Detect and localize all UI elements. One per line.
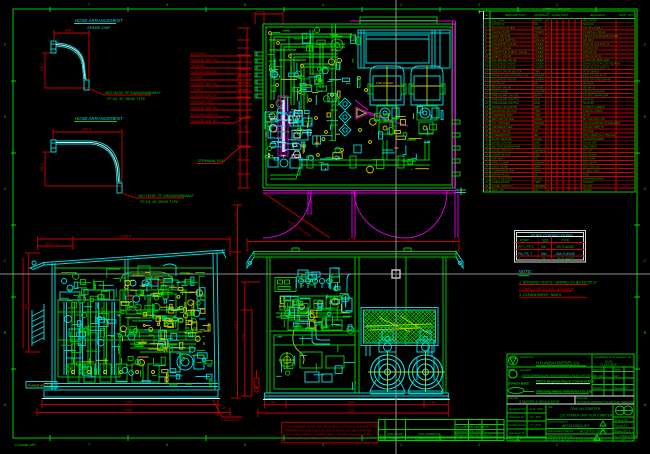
- svg-text:448.1: 448.1: [65, 29, 74, 33]
- svg-text:50A: 50A: [541, 252, 547, 256]
- svg-text:D: D: [4, 186, 7, 191]
- svg-text:Samsung Heavy Industries Co.,L: Samsung Heavy Industries Co.,Ltd: [536, 390, 593, 394]
- svg-text:Related: Related: [593, 386, 602, 390]
- svg-text:2430: 2430: [347, 409, 355, 413]
- svg-text:FLANGE 50A-1B: FLANGE 50A-1B: [190, 119, 217, 123]
- svg-text:TYPE: TYPE: [561, 239, 570, 243]
- svg-text:T PORT: T PORT: [190, 88, 204, 92]
- svg-text:2395.8: 2395.8: [119, 235, 131, 239]
- svg-text:28: 28: [221, 406, 226, 410]
- svg-text:E: E: [4, 114, 7, 119]
- svg-text:Registered: Registered: [614, 386, 627, 390]
- svg-text:MATERIAL LIST (UNIT): MATERIAL LIST (UNIT): [543, 7, 571, 11]
- svg-text:Scale: Scale: [614, 368, 621, 372]
- svg-text:H.G. YOO: H.G. YOO: [530, 407, 544, 411]
- svg-text:Consultant:: Consultant:: [520, 369, 532, 372]
- svg-text:Sheets No. 1: Sheets No. 1: [614, 429, 631, 433]
- svg-text:44: 44: [485, 188, 489, 192]
- svg-text:410.5: 410.5: [45, 242, 53, 246]
- svg-text:0/1: 0/1: [621, 438, 626, 442]
- svg-text:JIS FLANGE: JIS FLANGE: [556, 245, 575, 249]
- svg-text:K.L. KIM: K.L. KIM: [530, 415, 541, 419]
- svg-text:E: E: [644, 114, 647, 119]
- svg-text:PP 1, PF 2: PP 1, PF 2: [518, 245, 533, 249]
- svg-text:AB719-BS(D)-007: AB719-BS(D)-007: [561, 424, 589, 428]
- svg-text:Y.Y. KYU: Y.Y. KYU: [530, 423, 542, 427]
- svg-text:Confirmed by: Confirmed by: [509, 423, 526, 427]
- svg-text:-: -: [606, 387, 607, 390]
- svg-text:<Osnap off>: <Osnap off>: [14, 442, 37, 447]
- svg-text:Title: Title: [548, 406, 553, 409]
- svg-text:Date: Date: [391, 437, 398, 441]
- svg-text:BA PORT: BA PORT: [190, 52, 206, 56]
- svg-text:Checked by: Checked by: [509, 415, 524, 419]
- svg-text:5830: 5830: [348, 401, 355, 405]
- svg-text:STARTER & REGULATOR: STARTER & REGULATOR: [519, 400, 560, 404]
- svg-text:2013-01-25: 2013-01-25: [386, 432, 403, 436]
- svg-text:W/O HOSE, PF 3/4(W)&NI(B)MALE: W/O HOSE, PF 3/4(W)&NI(B)MALE: [105, 91, 161, 95]
- svg-text:PF 3/4, 90° BEND TYPE: PF 3/4, 90° BEND TYPE: [107, 97, 146, 101]
- svg-text:Scale 1:15: Scale 1:15: [614, 418, 628, 422]
- svg-text:50A FLANGE: 50A FLANGE: [556, 252, 576, 256]
- svg-text:7L21/31DF: 7L21/31DF: [600, 363, 618, 367]
- svg-text:DESCRIPTION: DESCRIPTION: [505, 13, 526, 17]
- svg-text:1168: 1168: [24, 303, 28, 310]
- svg-text:2100: 2100: [123, 401, 132, 405]
- svg-text:Rev: Rev: [380, 437, 386, 441]
- svg-text:2. PAINT PRESSURE - 150psi/bar: 2. PAINT PRESSURE - 150psi/bar: [518, 287, 575, 291]
- svg-text:W/O HOSE, PF 3/4(W)&NI(B)MALE: W/O HOSE, PF 3/4(W)&NI(B)MALE: [138, 194, 194, 198]
- svg-text:SIZE: SIZE: [542, 239, 550, 243]
- svg-text:Designed by: Designed by: [509, 407, 525, 411]
- svg-text:Regul iyilmaz Og Simb 1 3: Regul iyilmaz Og Simb 1 3: [456, 433, 492, 437]
- svg-text:PB PORT: PB PORT: [190, 64, 206, 68]
- svg-text:FLANGE 50A-2B: FLANGE 50A-2B: [190, 94, 217, 98]
- svg-text:C: C: [4, 258, 7, 263]
- svg-text:2700: 2700: [123, 409, 132, 413]
- svg-text:No. of Sheet / Total: No. of Sheet / Total: [614, 434, 637, 438]
- svg-text:25L: 25L: [540, 257, 547, 261]
- svg-text:FLANGE 80A TYPE: FLANGE 80A TYPE: [28, 384, 56, 388]
- svg-text:44/10K: 44/10K: [583, 188, 592, 192]
- svg-text:50L: 50L: [541, 245, 547, 249]
- svg-text:FLANGE 50A-1B: FLANGE 50A-1B: [190, 106, 217, 110]
- svg-text:PORT: PORT: [520, 239, 530, 243]
- svg-text:Format A1: Format A1: [614, 424, 627, 428]
- svg-text:295: 295: [243, 125, 247, 131]
- svg-text:Dash No: Dash No: [593, 368, 604, 372]
- svg-text:NOTE:: NOTE:: [519, 269, 534, 274]
- svg-text:SPARE ONE: SPARE ONE: [87, 25, 110, 30]
- svg-text:DOOSAN PRIMARY-AUXILIARY SERVI: DOOSAN PRIMARY-AUXILIARY SERVICE: [577, 400, 636, 404]
- svg-text:PURPOSE. CONTRAVENTION WILL: PURPOSE. CONTRAVENTION WILL BE PROSECUTE…: [285, 437, 362, 441]
- svg-text:REMARKS: REMARKS: [590, 13, 605, 17]
- svg-text:FLANGE 40A-2B: FLANGE 40A-2B: [190, 82, 217, 86]
- svg-text:SPARE PARTS: SPARE PARTS: [552, 14, 569, 17]
- svg-text:JIS FLANGE: JIS FLANGE: [556, 257, 575, 261]
- svg-text:760: 760: [430, 401, 436, 405]
- svg-text:905.4: 905.4: [82, 128, 91, 132]
- svg-text:1461.5: 1461.5: [234, 320, 238, 330]
- svg-text:430.8: 430.8: [40, 163, 44, 172]
- svg-text:-: -: [606, 375, 607, 378]
- svg-text:Standard: Standard: [509, 438, 521, 442]
- svg-text:-: -: [627, 387, 628, 390]
- svg-text:PF 3/4, 90° BEND TYPE: PF 3/4, 90° BEND TYPE: [140, 200, 179, 204]
- svg-text:PN, PS, T: PN, PS, T: [518, 252, 533, 256]
- svg-text:Sub-Contractor Dwg No: Sub-Contractor Dwg No: [548, 430, 574, 433]
- svg-text:-: -: [627, 381, 628, 384]
- svg-text:PN PORT LEFT: PN PORT LEFT: [190, 100, 216, 104]
- svg-text:FLANGE 50A-2B: FLANGE 50A-2B: [190, 58, 217, 62]
- svg-text:748: 748: [236, 75, 240, 80]
- svg-text:KS: KS: [534, 188, 538, 192]
- svg-text:280: 280: [269, 401, 276, 405]
- svg-text:1. BONDING TESTS - WIRING TO B: 1. BONDING TESTS - WIRING TO BS EN 50 22: [519, 281, 597, 285]
- svg-text:-: -: [606, 381, 607, 384]
- svg-text:TOP APPROVAL: TOP APPROVAL: [418, 432, 441, 436]
- svg-text:B: B: [4, 330, 7, 335]
- svg-text:S PORT: S PORT: [190, 76, 204, 80]
- svg-text:BALL V/V: BALL V/V: [492, 188, 505, 192]
- svg-text:C: C: [644, 258, 647, 263]
- svg-text:Item Ref: Item Ref: [593, 374, 603, 378]
- svg-text:3. CLEANLINESS : NAS 6: 3. CLEANLINESS : NAS 6: [519, 293, 561, 297]
- svg-text:PN PORT RIGHT: PN PORT RIGHT: [190, 113, 218, 117]
- svg-text:L-W/S HOLE: L-W/S HOLE: [221, 419, 240, 423]
- svg-text:Ordered by:: Ordered by:: [520, 355, 534, 359]
- svg-text:Approved by: Approved by: [508, 431, 525, 435]
- svg-text:-: -: [606, 369, 607, 372]
- svg-text:7DW 1/H STARTER: 7DW 1/H STARTER: [570, 407, 601, 411]
- svg-text:A: A: [643, 402, 647, 407]
- svg-text:2730: 2730: [347, 237, 356, 241]
- svg-text:FLANGE 50A-2B: FLANGE 50A-2B: [190, 70, 217, 74]
- svg-text:OIL POWER UNIT FOR STARTER: OIL POWER UNIT FOR STARTER: [560, 414, 613, 418]
- svg-text:HOSE ARRANGEMENT: HOSE ARRANGEMENT: [75, 18, 123, 23]
- svg-text:88: 88: [234, 212, 238, 216]
- svg-text:-: -: [627, 375, 628, 378]
- svg-text:TERMINAL BOX: TERMINAL BOX: [197, 159, 226, 163]
- svg-text:HYUNDAI DIESEL Co.: HYUNDAI DIESEL Co.: [536, 361, 581, 366]
- svg-text:-: -: [627, 369, 628, 372]
- svg-text:102.3: 102.3: [256, 9, 264, 13]
- svg-text:1: 1: [556, 2, 558, 7]
- svg-text:1100: 1100: [241, 333, 245, 340]
- svg-text:FOR P2(M)P: FOR P2(M)P: [376, 81, 393, 85]
- svg-text:430.8: 430.8: [40, 63, 44, 72]
- svg-text:Std.: Std.: [614, 374, 619, 378]
- svg-text:HOSE ARRANGEMENT: HOSE ARRANGEMENT: [75, 116, 123, 121]
- svg-text:Short title: Short title: [508, 397, 519, 400]
- svg-text:D: D: [644, 186, 647, 191]
- svg-text:1: 1: [556, 442, 558, 447]
- svg-text:Revision Description: Revision Description: [415, 437, 443, 441]
- svg-text:DWG. NO: DWG. NO: [619, 13, 633, 17]
- svg-text:B: B: [644, 330, 647, 335]
- svg-text:No: No: [485, 13, 489, 17]
- svg-text:PECS Engineering & Constructio: PECS Engineering & Construction: [536, 380, 595, 384]
- svg-text:posco E&C: posco E&C: [507, 381, 529, 386]
- svg-text:A: A: [3, 402, 7, 407]
